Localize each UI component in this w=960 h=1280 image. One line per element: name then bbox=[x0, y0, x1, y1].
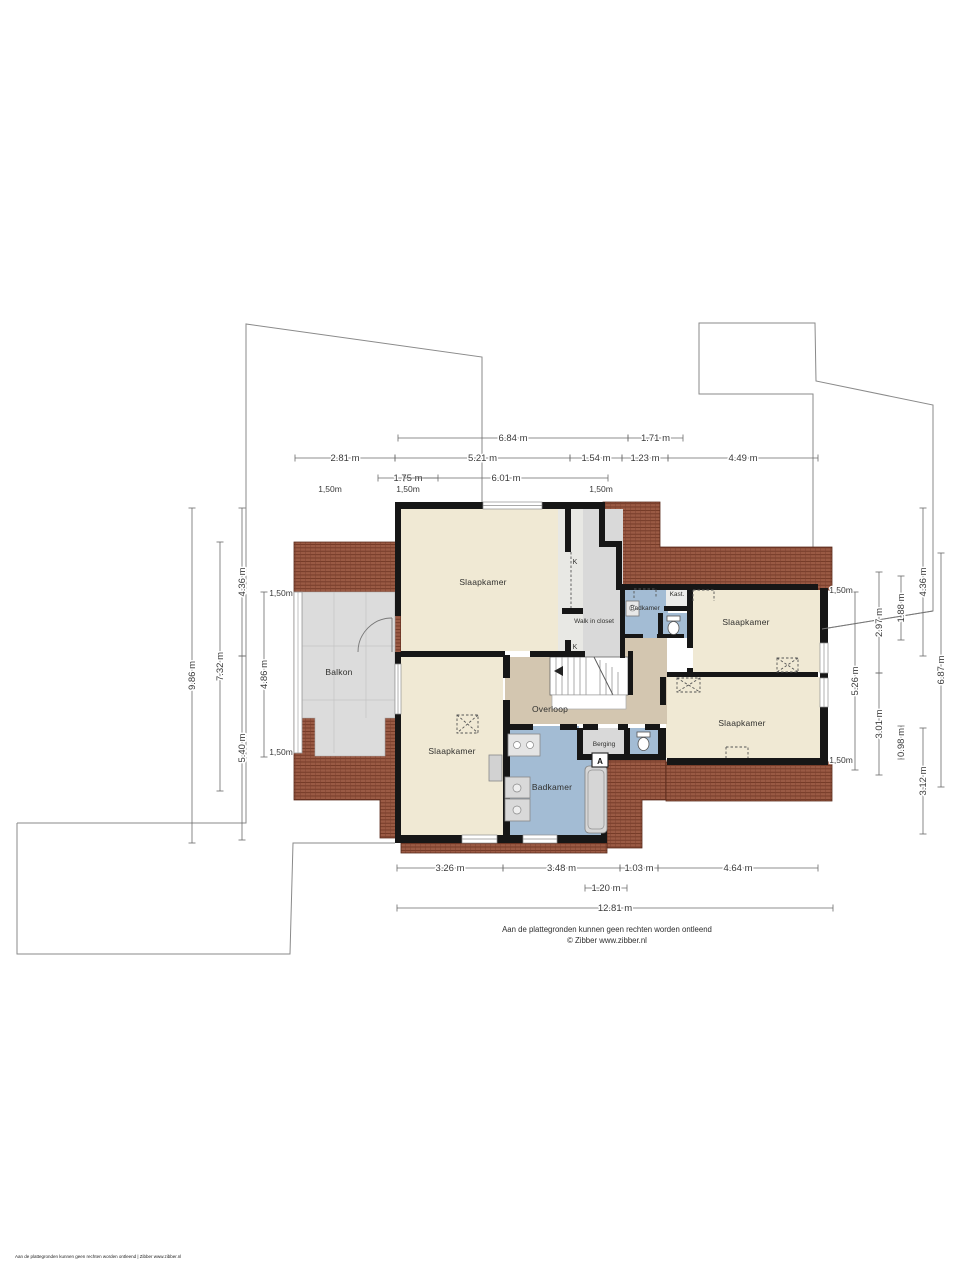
label-closet-k1: K bbox=[573, 559, 578, 566]
dimension-label: 1.88 m bbox=[896, 593, 907, 622]
dimension: 6.84 m bbox=[398, 433, 628, 444]
roof-height-mark: 1,50m bbox=[396, 484, 420, 494]
roof-bottom-middle bbox=[607, 760, 666, 848]
footer-credit: © Zibber www.zibber.nl bbox=[567, 936, 647, 945]
dimension-label: 4.36 m bbox=[237, 567, 248, 596]
roof-height-mark: 1,50m bbox=[269, 588, 293, 598]
dimension-label: 5.40 m bbox=[237, 733, 248, 762]
dimension: 12.81 m bbox=[397, 903, 833, 914]
dimension: 2.81 m bbox=[295, 453, 395, 464]
dimension: 1.54 m bbox=[570, 453, 622, 464]
roof-bottom-right bbox=[666, 762, 832, 801]
roof-height-mark: 1,50m bbox=[269, 747, 293, 757]
dimension-label: 5.21 m bbox=[468, 453, 497, 464]
dimension: 4.86 m bbox=[259, 592, 270, 757]
dimension-label: 12.81 m bbox=[598, 903, 632, 914]
dimension: 4.49 m bbox=[668, 453, 818, 464]
dimension-label: 3.48 m bbox=[547, 863, 576, 874]
dimension: 3.01 m bbox=[874, 673, 885, 775]
roof-bottom-eave bbox=[401, 843, 607, 853]
dimension: 3.26 m bbox=[397, 863, 503, 874]
label-berging: Berging bbox=[593, 741, 616, 748]
dimension: 0.98 m bbox=[896, 726, 907, 759]
dimension: 6.87 m bbox=[936, 553, 947, 787]
dimension: 7.32 m bbox=[215, 542, 226, 791]
dimension-label: 1.54 m bbox=[581, 453, 610, 464]
toilet-bottom bbox=[637, 732, 650, 751]
dimension: 1.75 m bbox=[378, 473, 438, 484]
dimension: 4.64 m bbox=[658, 863, 818, 874]
dimension-label: 1.03 m bbox=[624, 863, 653, 874]
washbasin-double bbox=[508, 734, 540, 756]
label-balkon: Balkon bbox=[325, 667, 352, 677]
dimension-label: 1.71 m bbox=[641, 433, 670, 444]
dimension: 3.12 m bbox=[918, 728, 929, 834]
dimension: 1.23 m bbox=[622, 453, 668, 464]
dimension: 1.20 m bbox=[585, 883, 627, 894]
floorplan-page: A Slaapkamer Slaapkamer Slaapkamer Slaap… bbox=[0, 0, 960, 1280]
footer-disclaimer: Aan de plattegronden kunnen geen rechten… bbox=[502, 925, 712, 934]
label-slaapkamer-bottomright: Slaapkamer bbox=[718, 718, 765, 728]
dimension-label: 2.81 m bbox=[330, 453, 359, 464]
label-badkamer-top: Badkamer bbox=[630, 605, 660, 612]
label-slaapkamer-topleft: Slaapkamer bbox=[459, 577, 506, 587]
label-slaapkamer-topright: Slaapkamer bbox=[722, 617, 769, 627]
staircase bbox=[550, 657, 628, 709]
floorplan-canvas: A Slaapkamer Slaapkamer Slaapkamer Slaap… bbox=[0, 0, 960, 1280]
dimension-label: 3.12 m bbox=[918, 766, 929, 795]
hall-overloop-north bbox=[620, 638, 667, 657]
dimension: 5.21 m bbox=[395, 453, 570, 464]
label-closet-k2: K bbox=[573, 644, 578, 651]
dimension-label: 5.26 m bbox=[850, 666, 861, 695]
roof-height-mark: 1,50m bbox=[829, 585, 853, 595]
attic-hatch-marker: A bbox=[592, 753, 608, 767]
roof-height-mark: 1,50m bbox=[589, 484, 613, 494]
dimension-label: 1.20 m bbox=[591, 883, 620, 894]
dimension-label: 6.01 m bbox=[491, 473, 520, 484]
dimension: 3.48 m bbox=[503, 863, 620, 874]
dimension-label: 4.36 m bbox=[918, 567, 929, 596]
roof-height-mark: 1,50m bbox=[318, 484, 342, 494]
dimension: 4.36 m bbox=[918, 508, 929, 656]
dimension-label: 9.86 m bbox=[187, 661, 198, 690]
dimension-label: 6.87 m bbox=[936, 655, 947, 684]
dimension: 6.01 m bbox=[404, 473, 608, 484]
dimension-label: 1.23 m bbox=[630, 453, 659, 464]
berging-marker-label: A bbox=[597, 757, 603, 766]
dimension-label: 4.49 m bbox=[728, 453, 757, 464]
dimension: 1.88 m bbox=[896, 576, 907, 640]
dimension-label: 0.98 m bbox=[896, 728, 907, 757]
wardrobe-cabinet bbox=[489, 755, 502, 781]
dimension-label: 6.84 m bbox=[498, 433, 527, 444]
dimension-label: 4.86 m bbox=[259, 660, 270, 689]
room-wardrobe-strip bbox=[558, 509, 585, 651]
dimension-label: 3.26 m bbox=[435, 863, 464, 874]
dimension-label: 3.01 m bbox=[874, 709, 885, 738]
toilet-top bbox=[667, 616, 680, 635]
label-walk-in-closet: Walk in closet bbox=[574, 618, 614, 625]
dimension: 4.36 m bbox=[237, 508, 248, 656]
dimension-label: 7.32 m bbox=[215, 652, 226, 681]
dimension-label: 2.97 m bbox=[874, 608, 885, 637]
dimension: 1.03 m bbox=[620, 863, 658, 874]
roof-height-mark: 1,50m bbox=[829, 755, 853, 765]
label-overloop: Overloop bbox=[532, 704, 568, 714]
dimension: 1.71 m bbox=[628, 433, 683, 444]
dimension: 5.26 m bbox=[850, 592, 861, 770]
dimension: 9.86 m bbox=[187, 508, 198, 843]
room-slaapkamer-topright bbox=[693, 590, 820, 672]
roof-top-right bbox=[603, 502, 832, 590]
label-kast: Kast. bbox=[670, 591, 685, 598]
dimension-label: 1.75 m bbox=[393, 473, 422, 484]
corner-disclaimer: Aan de plattegronden kunnen geen rechten… bbox=[15, 1254, 181, 1259]
dimension: 2.97 m bbox=[874, 572, 885, 673]
label-slaapkamer-bottomleft: Slaapkamer bbox=[428, 746, 475, 756]
dimension: 5.40 m bbox=[237, 656, 248, 840]
dimension-label: 4.64 m bbox=[723, 863, 752, 874]
label-badkamer-bottom: Badkamer bbox=[532, 782, 572, 792]
